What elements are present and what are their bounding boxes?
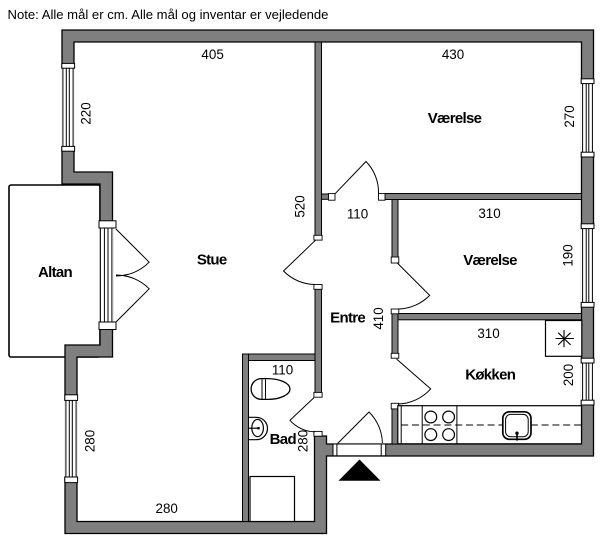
svg-text:220: 220 xyxy=(79,102,94,124)
svg-text:Entre: Entre xyxy=(330,309,365,326)
svg-text:110: 110 xyxy=(272,363,293,378)
svg-text:520: 520 xyxy=(293,195,308,217)
svg-text:280: 280 xyxy=(296,430,311,452)
svg-text:270: 270 xyxy=(562,105,577,127)
svg-text:280: 280 xyxy=(156,501,178,516)
svg-text:Værelse: Værelse xyxy=(463,252,517,269)
svg-text:Bad: Bad xyxy=(270,431,297,448)
svg-text:110: 110 xyxy=(347,207,368,222)
svg-text:410: 410 xyxy=(371,307,386,329)
svg-text:280: 280 xyxy=(83,430,98,452)
svg-text:190: 190 xyxy=(561,244,576,266)
svg-text:Køkken: Køkken xyxy=(465,367,516,384)
svg-text:200: 200 xyxy=(561,364,576,386)
svg-text:310: 310 xyxy=(477,326,499,341)
svg-text:Værelse: Værelse xyxy=(428,110,482,127)
svg-text:430: 430 xyxy=(442,47,464,62)
svg-text:310: 310 xyxy=(478,206,500,221)
svg-text:Altan: Altan xyxy=(38,264,73,281)
svg-text:Note: Alle mål er cm. Alle mål: Note: Alle mål er cm. Alle mål og invent… xyxy=(8,7,329,22)
svg-text:405: 405 xyxy=(201,47,223,62)
svg-text:Stue: Stue xyxy=(197,252,227,269)
